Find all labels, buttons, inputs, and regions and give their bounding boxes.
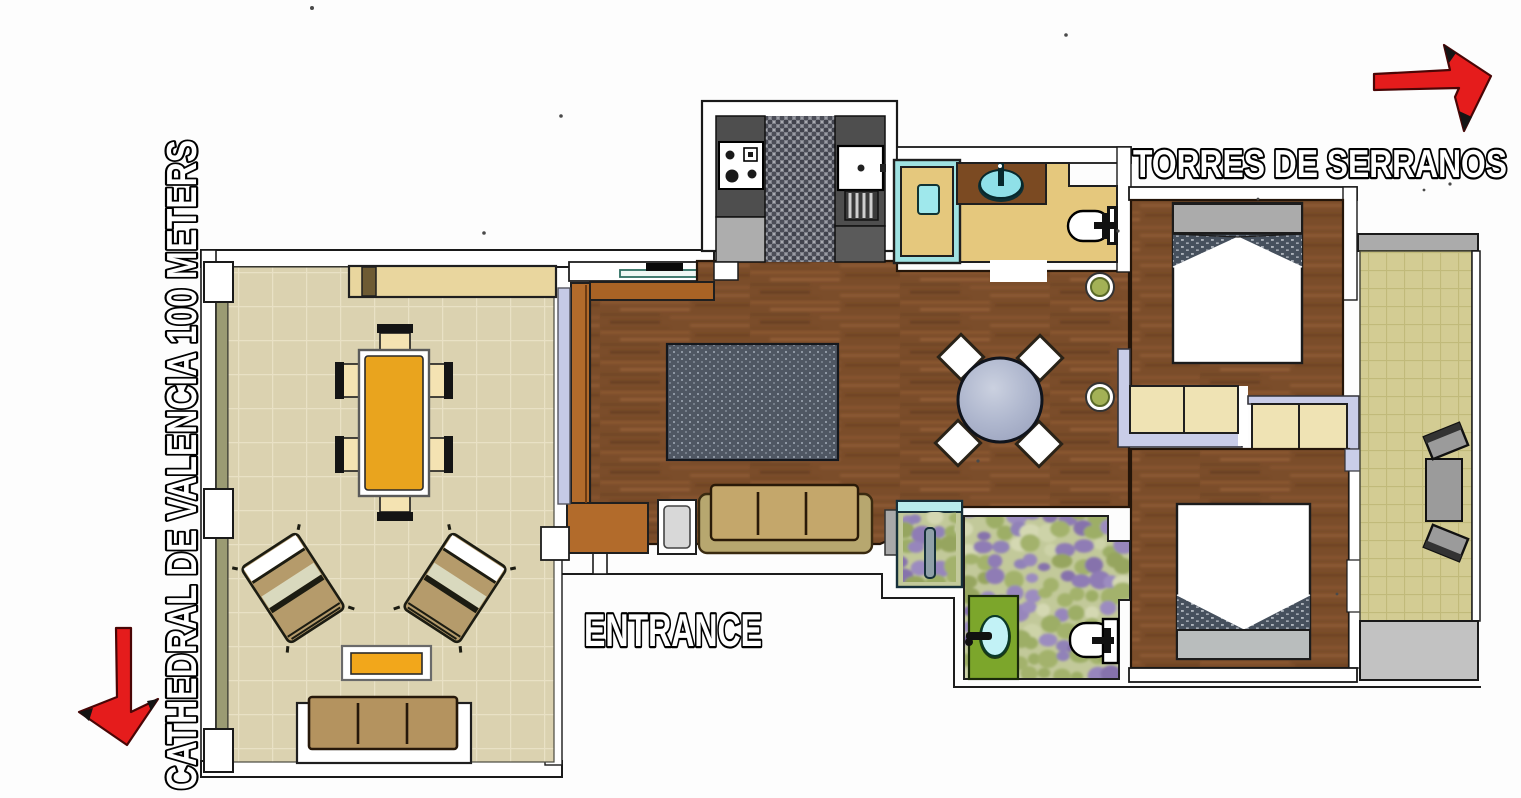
svg-text:TORRES DE SERRANOS: TORRES DE SERRANOS: [1133, 143, 1507, 186]
svg-text:ENTRANCE: ENTRANCE: [584, 604, 762, 656]
svg-text:CATHEDRAL DE VALENCIA 100 METE: CATHEDRAL DE VALENCIA 100 METERS: [158, 140, 205, 790]
